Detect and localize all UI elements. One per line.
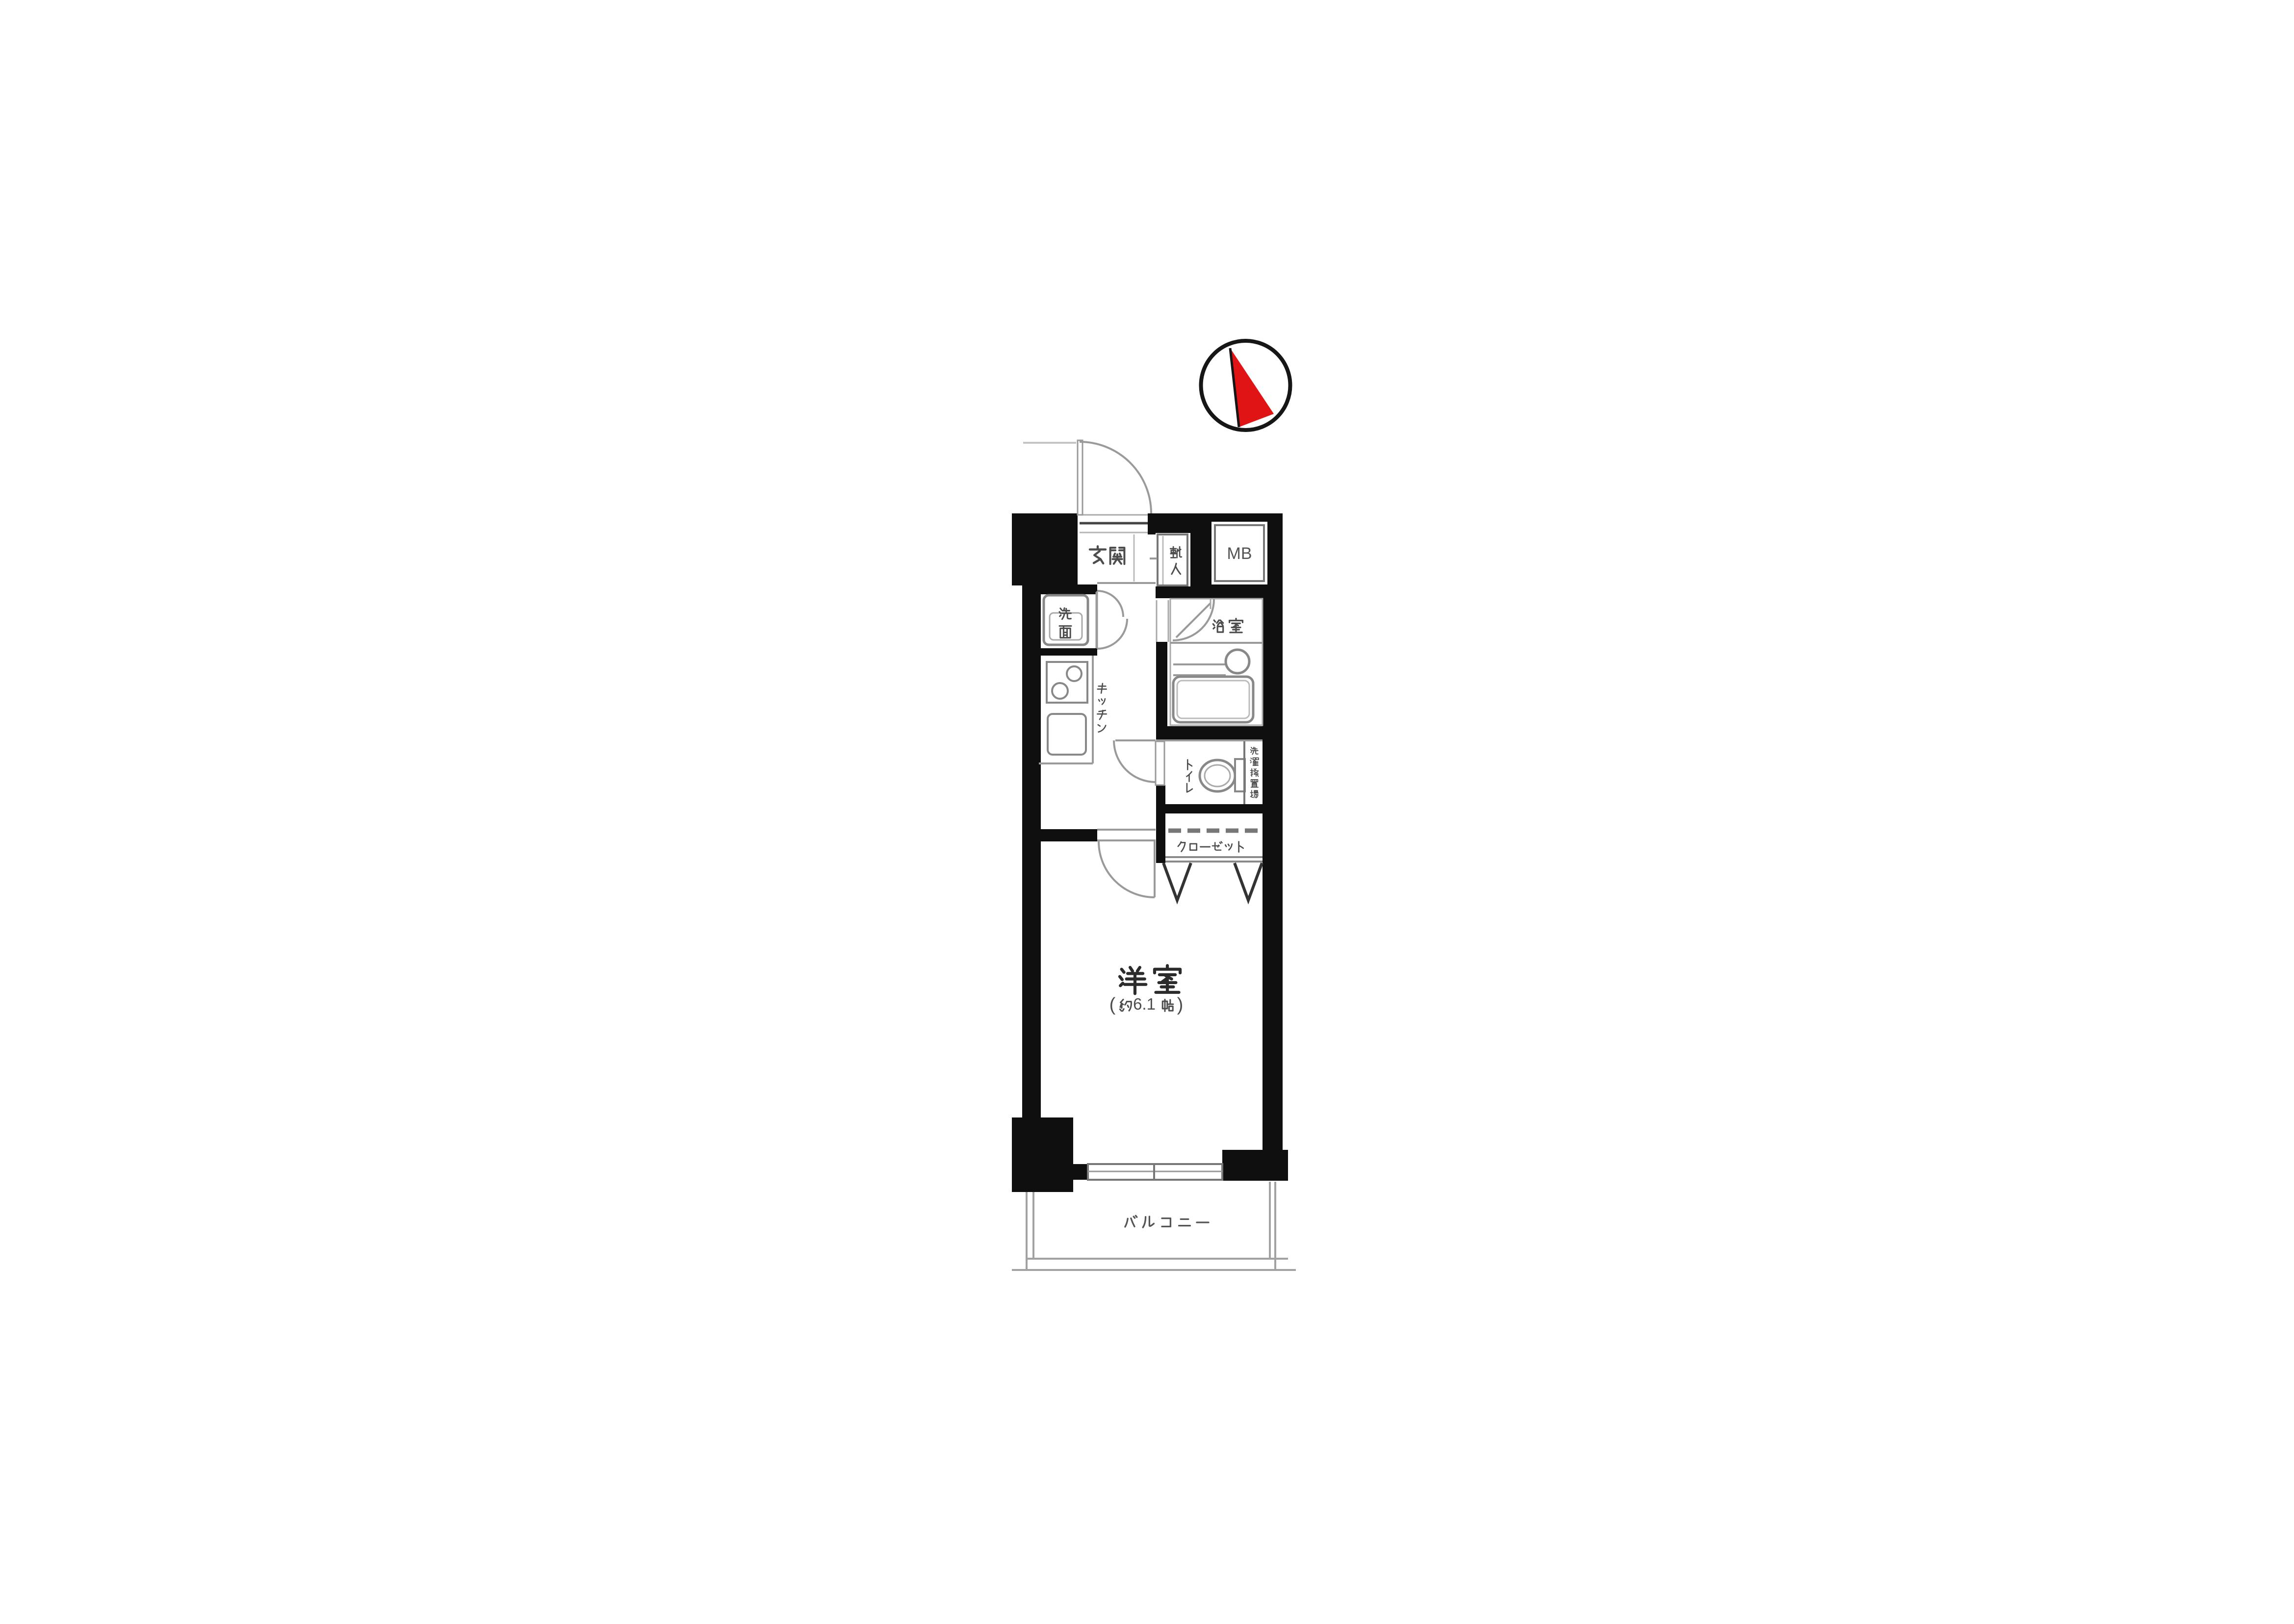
svg-text:): ): [1177, 994, 1184, 1015]
svg-text:(: (: [1109, 994, 1116, 1015]
svg-text:6.1: 6.1: [1133, 995, 1156, 1013]
svg-text:MB: MB: [1227, 544, 1252, 563]
